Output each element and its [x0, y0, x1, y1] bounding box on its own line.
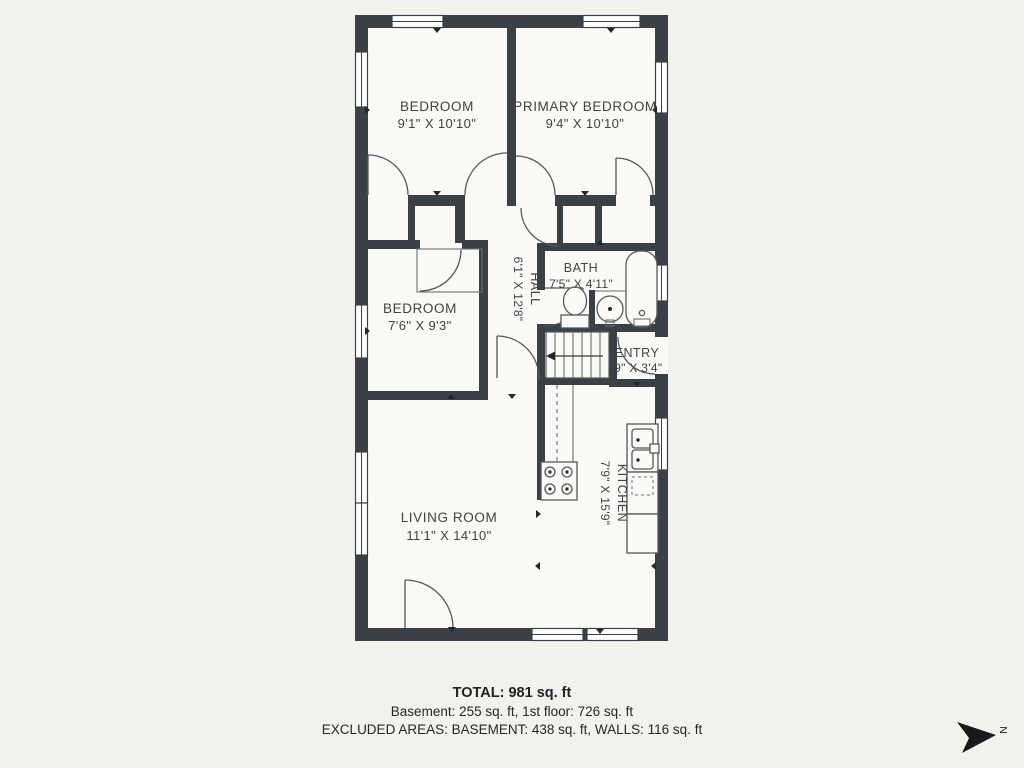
window: [356, 503, 368, 555]
room-dims-primary-bedroom: 9'4" X 10'10": [546, 116, 625, 131]
room-dims-bedroom-middle: 7'6" X 9'3": [388, 318, 451, 333]
room-label-living-room: LIVING ROOM: [401, 510, 498, 525]
total-area-text: TOTAL: 981 sq. ft: [453, 685, 572, 701]
floor-areas-text: Basement: 255 sq. ft, 1st floor: 726 sq.…: [391, 704, 634, 719]
window: [356, 52, 368, 107]
kitchen-sink: [627, 424, 659, 472]
window: [583, 16, 640, 28]
room-label-hall: HALL: [528, 272, 542, 305]
window: [392, 16, 443, 28]
window: [656, 62, 668, 113]
room-dims-kitchen: 7'9" X 15'9": [598, 461, 612, 526]
room-dims-bedroom1: 9'1" X 10'10": [398, 116, 477, 131]
floor-plan-canvas: BEDROOM 9'1" X 10'10" PRIMARY BEDROOM 9'…: [0, 0, 1024, 768]
room-label-bedroom-middle: BEDROOM: [383, 301, 457, 316]
north-label: N: [997, 726, 1009, 734]
room-dims-hall: 6'1" X 12'8": [511, 257, 525, 322]
room-label-entry: ENTRY: [615, 346, 660, 360]
room-dims-bath: 7'5" X 4'11": [549, 277, 613, 291]
stove: [541, 462, 577, 500]
floor-plan-page: BEDROOM 9'1" X 10'10" PRIMARY BEDROOM 9'…: [0, 0, 1024, 768]
room-label-bath: BATH: [564, 261, 598, 275]
window: [532, 629, 583, 641]
room-dims-living-room: 11'1" X 14'10": [406, 528, 491, 543]
window: [587, 629, 638, 641]
toilet: [561, 287, 589, 328]
excluded-areas-text: EXCLUDED AREAS: BASEMENT: 438 sq. ft, WA…: [322, 722, 703, 737]
bathtub: [626, 251, 657, 327]
room-label-kitchen: KITCHEN: [615, 464, 629, 522]
room-label-primary-bedroom: PRIMARY BEDROOM: [513, 99, 657, 114]
room-label-bedroom1: BEDROOM: [400, 99, 474, 114]
room-dims-entry: '9" X 3'4": [612, 361, 663, 375]
kitchen-counter: [627, 472, 658, 553]
window: [356, 452, 368, 503]
